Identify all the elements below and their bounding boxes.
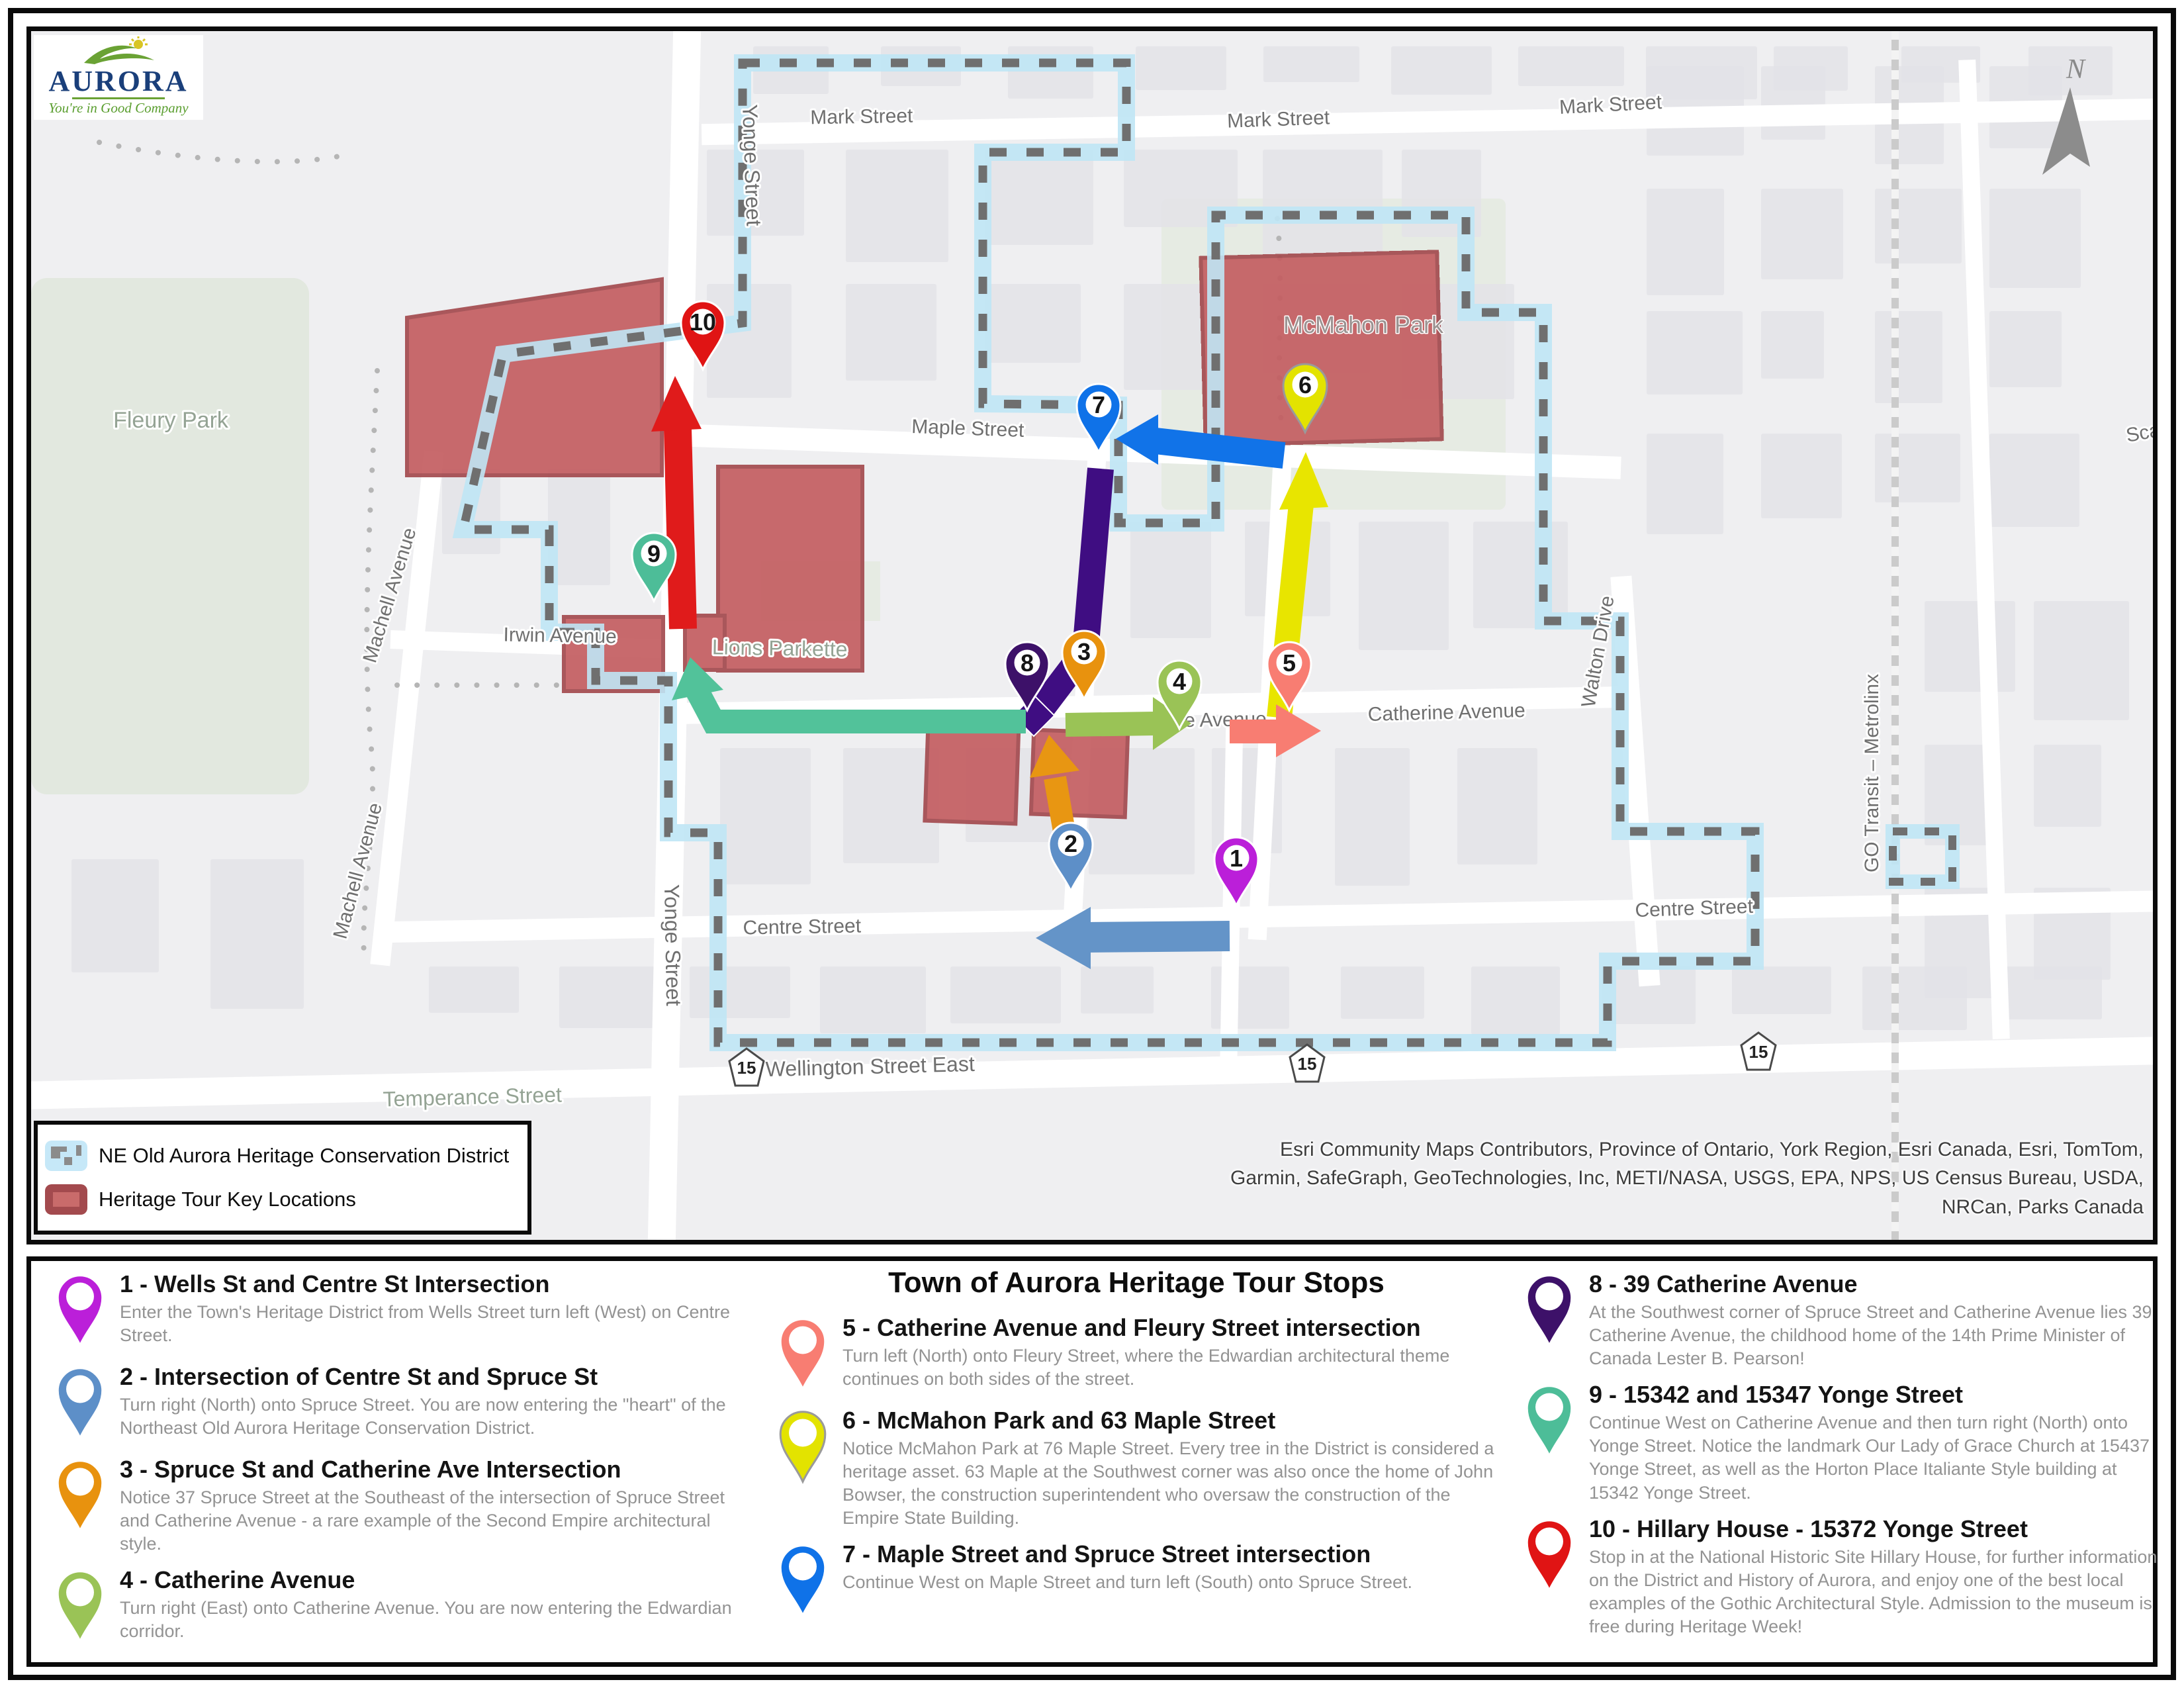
logo-rule — [72, 97, 165, 99]
pin-icon-3 — [52, 1456, 109, 1538]
stop-pin-icon — [50, 1566, 111, 1648]
park-label: Fleury Park — [113, 408, 229, 433]
map-building-block — [1732, 966, 1831, 1014]
map-building-block — [1391, 46, 1492, 95]
street-label: Irwin Avenue — [503, 624, 617, 648]
stop-title: 10 - Hillary House - 15372 Yonge Street — [1589, 1515, 2162, 1543]
pin-icon-5 — [774, 1314, 831, 1396]
stop-title: 1 - Wells St and Centre St Intersection — [120, 1270, 755, 1298]
tour-stop-entry-6: 6 - McMahon Park and 63 Maple StreetNoti… — [772, 1407, 1500, 1530]
route-4-catherine — [1066, 724, 1155, 725]
map-attribution: Esri Community Maps Contributors, Provin… — [1138, 1135, 2144, 1222]
aurora-logo: AURORA You're in Good Company — [34, 35, 203, 120]
shield-number: 15 — [737, 1058, 756, 1078]
map-building-block — [1761, 66, 1825, 140]
tour-stop-entry-5: 5 - Catherine Avenue and Fleury Street i… — [772, 1314, 1500, 1396]
tour-stop-entry-3: 3 - Spruce St and Catherine Ave Intersec… — [50, 1456, 755, 1556]
map-building-block — [1989, 434, 2079, 527]
shield-number: 15 — [1749, 1042, 1768, 1062]
street-label: Centre Street — [1635, 896, 1754, 921]
street-label: Yonge Street — [738, 104, 766, 226]
tour-stop-entry-10: 10 - Hillary House - 15372 Yonge StreetS… — [1519, 1515, 2162, 1638]
map-building-block — [846, 284, 936, 381]
page: Mark StreetMark StreetMark StreetYonge S… — [0, 0, 2184, 1688]
stop-pin-icon — [772, 1540, 833, 1622]
shield-number: 15 — [1298, 1054, 1317, 1074]
aurora-logo-hill-icon — [80, 36, 159, 67]
pin-icon-4 — [52, 1566, 109, 1648]
stop-description: Continue West on Catherine Avenue and th… — [1589, 1411, 2162, 1504]
map-legend: NE Old Aurora Heritage Conservation Dist… — [34, 1121, 531, 1235]
stop-title: 2 - Intersection of Centre St and Spruce… — [120, 1363, 755, 1391]
map-building-block — [1457, 748, 1537, 865]
map-building-block — [1875, 434, 1960, 502]
tour-stop-entry-1: 1 - Wells St and Centre St IntersectionE… — [50, 1270, 755, 1352]
map-building-block — [1359, 522, 1449, 650]
stop-title: 5 - Catherine Avenue and Fleury Street i… — [842, 1314, 1500, 1342]
stop-pin-icon — [50, 1363, 111, 1445]
pin-icon-6 — [774, 1407, 831, 1489]
heritage-map: Mark StreetMark StreetMark StreetYonge S… — [26, 26, 2158, 1244]
map-building-block — [1647, 311, 1743, 395]
stop-text: 1 - Wells St and Centre St IntersectionE… — [120, 1270, 755, 1352]
stop-pin-icon — [772, 1407, 833, 1530]
map-pin-number: 5 — [1283, 649, 1296, 677]
tour-stop-entry-4: 4 - Catherine AvenueTurn right (East) on… — [50, 1566, 755, 1648]
map-building-block — [71, 859, 159, 972]
map-building-block — [690, 966, 790, 1018]
stop-title: 3 - Spruce St and Catherine Ave Intersec… — [120, 1456, 755, 1483]
stop-text: 5 - Catherine Avenue and Fleury Street i… — [842, 1314, 1500, 1396]
legend-item: NE Old Aurora Heritage Conservation Dist… — [44, 1140, 521, 1172]
stop-description: Notice McMahon Park at 76 Maple Street. … — [842, 1437, 1500, 1530]
map-building-block — [1862, 966, 1967, 1030]
map-building-block — [1993, 966, 2102, 1019]
pin-icon-9 — [1521, 1381, 1578, 1463]
stop-pin-icon — [1519, 1515, 1580, 1638]
attribution-line: NRCan, Parks Canada — [1138, 1193, 2144, 1222]
stop-pin-icon — [772, 1314, 833, 1396]
map-building-block — [1925, 601, 2015, 692]
map-building-block — [1989, 311, 2062, 387]
route-1-to-2 — [1085, 936, 1230, 937]
attribution-line: Garmin, SafeGraph, GeoTechnologies, Inc,… — [1138, 1164, 2144, 1193]
stop-description: Turn left (North) onto Fleury Street, wh… — [842, 1344, 1500, 1391]
tour-stop-entry-9: 9 - 15342 and 15347 Yonge StreetContinue… — [1519, 1381, 2162, 1504]
stop-description: Enter the Town's Heritage District from … — [120, 1301, 755, 1347]
street-label: GO Transit – Metrolinx — [1861, 674, 1883, 872]
go-rail-line — [1891, 31, 1899, 1240]
map-building-block — [985, 150, 1093, 245]
stop-title: 6 - McMahon Park and 63 Maple Street — [842, 1407, 1500, 1434]
pin-icon-1 — [52, 1270, 109, 1352]
map-pin-number: 9 — [647, 540, 660, 567]
stop-text: 9 - 15342 and 15347 Yonge StreetContinue… — [1589, 1381, 2162, 1504]
legend-item-label: NE Old Aurora Heritage Conservation Dist… — [99, 1144, 509, 1168]
stop-description: At the Southwest corner of Spruce Street… — [1589, 1301, 2162, 1370]
stops-column-3: 8 - 39 Catherine AvenueAt the Southwest … — [1519, 1270, 2162, 1638]
park-label: Temperance Street — [383, 1082, 562, 1111]
pin-icon-8 — [1521, 1270, 1578, 1352]
legend-item-label: Heritage Tour Key Locations — [99, 1188, 356, 1211]
map-building-block — [1081, 966, 1154, 1013]
stop-pin-icon — [1519, 1270, 1580, 1370]
map-building-block — [429, 966, 519, 1013]
park-label: Lions Parkette — [712, 635, 848, 661]
map-building-block — [1335, 748, 1410, 886]
stop-title: 9 - 15342 and 15347 Yonge Street — [1589, 1381, 2162, 1409]
map-pin-number: 10 — [690, 308, 716, 336]
map-building-block — [559, 966, 655, 1028]
fleury-park-area — [31, 278, 309, 794]
street-label: Maple Street — [911, 416, 1025, 442]
spruce-37-site — [925, 720, 1019, 824]
map-building-block — [1761, 189, 1843, 279]
map-pin-number: 1 — [1230, 845, 1243, 872]
stop-pin-icon — [50, 1270, 111, 1352]
map-building-block — [2034, 745, 2101, 827]
map-building-block — [1875, 189, 1962, 263]
stop-text: 10 - Hillary House - 15372 Yonge StreetS… — [1589, 1515, 2162, 1638]
stop-description: Stop in at the National Historic Site Hi… — [1589, 1546, 2162, 1638]
map-building-block — [846, 150, 948, 262]
stop-text: 6 - McMahon Park and 63 Maple StreetNoti… — [842, 1407, 1500, 1530]
stop-title: 7 - Maple Street and Spruce Street inter… — [842, 1540, 1412, 1568]
map-building-block — [1008, 46, 1093, 99]
stop-description: Turn right (North) onto Spruce Street. Y… — [120, 1393, 755, 1440]
stop-text: 7 - Maple Street and Spruce Street inter… — [842, 1540, 1412, 1622]
street-label: Yonge Street — [660, 884, 686, 1006]
park-label: McMahon Park — [1283, 311, 1444, 338]
map-building-block — [1761, 311, 1824, 379]
map-image: Mark StreetMark StreetMark StreetYonge S… — [31, 31, 2153, 1240]
map-pin-number: 2 — [1064, 830, 1077, 857]
stop-pin-icon — [1519, 1381, 1580, 1504]
stop-pin-icon — [50, 1456, 111, 1556]
map-building-block — [1647, 189, 1724, 295]
map-pin-number: 6 — [1298, 371, 1312, 399]
aurora-wordmark: AURORA — [34, 64, 203, 98]
stop-description: Notice 37 Spruce Street at the Southeast… — [120, 1486, 755, 1556]
tour-stop-entry-8: 8 - 39 Catherine AvenueAt the Southwest … — [1519, 1270, 2162, 1370]
attribution-line: Esri Community Maps Contributors, Provin… — [1138, 1135, 2144, 1164]
aurora-tagline: You're in Good Company — [34, 100, 203, 117]
map-building-block — [950, 966, 1061, 1023]
map-pin-number: 4 — [1173, 668, 1186, 695]
stops-column-1: 1 - Wells St and Centre St IntersectionE… — [50, 1270, 755, 1648]
map-building-block — [820, 966, 926, 1033]
map-pin-number: 3 — [1077, 638, 1091, 665]
stop-title: 4 - Catherine Avenue — [120, 1566, 755, 1594]
route-7-maple — [1156, 441, 1284, 455]
stop-text: 2 - Intersection of Centre St and Spruce… — [120, 1363, 755, 1445]
street-label: Centre Street — [743, 915, 862, 939]
map-building-block — [1473, 522, 1568, 628]
map-building-block — [1989, 189, 2081, 288]
map-building-block — [985, 284, 1081, 363]
street-label: Mark Street — [1227, 107, 1331, 132]
map-building-block — [1647, 434, 1723, 534]
district-swatch-icon — [44, 1140, 88, 1172]
map-building-block — [2034, 601, 2129, 720]
stop-title: 8 - 39 Catherine Avenue — [1589, 1270, 2162, 1298]
pin-icon-2 — [52, 1363, 109, 1445]
map-building-block — [210, 859, 304, 1009]
stop-text: 3 - Spruce St and Catherine Ave Intersec… — [120, 1456, 755, 1556]
map-building-block — [1263, 46, 1359, 82]
street-label: Mark Street — [810, 105, 913, 129]
pin-icon-10 — [1521, 1515, 1578, 1597]
street-label: Catherine Avenue — [1367, 700, 1525, 726]
stop-description: Turn right (East) onto Catherine Avenue.… — [120, 1597, 755, 1643]
stop-description: Continue West on Maple Street and turn l… — [842, 1571, 1412, 1594]
route-9-to-10 — [678, 429, 683, 629]
stops-column-2: Town of Aurora Heritage Tour Stops 5 - C… — [772, 1265, 1500, 1622]
map-pin-number: 7 — [1092, 391, 1105, 418]
map-building-block — [1875, 311, 1942, 403]
tour-stops-panel: 1 - Wells St and Centre St IntersectionE… — [26, 1256, 2158, 1667]
panel-title: Town of Aurora Heritage Tour Stops — [772, 1266, 1500, 1299]
map-building-block — [1341, 966, 1424, 1019]
stop-text: 8 - 39 Catherine AvenueAt the Southwest … — [1589, 1270, 2162, 1370]
north-label: N — [2066, 54, 2086, 85]
map-building-block — [720, 748, 811, 884]
map-pin-number: 8 — [1021, 649, 1034, 677]
map-building-block — [1471, 966, 1560, 1035]
map-building-block — [1761, 434, 1842, 518]
map-building-block — [1518, 46, 1624, 86]
key-location-swatch-icon — [44, 1184, 88, 1215]
mcmahon-park-site — [1201, 252, 1441, 445]
tour-stop-entry-7: 7 - Maple Street and Spruce Street inter… — [772, 1540, 1500, 1622]
pin-icon-7 — [774, 1540, 831, 1622]
stop-text: 4 - Catherine AvenueTurn right (East) on… — [120, 1566, 755, 1648]
map-building-block — [1130, 522, 1211, 638]
legend-item: Heritage Tour Key Locations — [44, 1184, 521, 1215]
map-building-block — [1136, 46, 1226, 90]
tour-stop-entry-2: 2 - Intersection of Centre St and Spruce… — [50, 1363, 755, 1445]
